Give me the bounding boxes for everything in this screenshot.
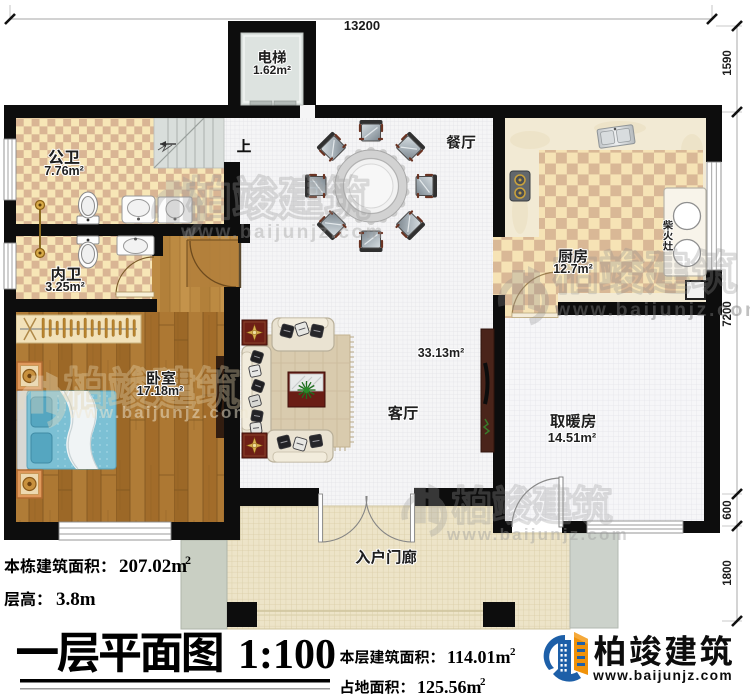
- svg-text:207.02m: 207.02m: [119, 556, 187, 577]
- svg-text:1800: 1800: [722, 560, 734, 586]
- svg-text:125.56m: 125.56m: [417, 677, 482, 697]
- svg-text:3.25m²: 3.25m²: [45, 280, 85, 294]
- svg-text:www.baijunjz.com: www.baijunjz.com: [180, 222, 385, 243]
- svg-text:7.76m²: 7.76m²: [44, 164, 84, 178]
- svg-text:1.62m²: 1.62m²: [253, 63, 291, 77]
- svg-text:1590: 1590: [722, 50, 734, 76]
- svg-text:600: 600: [722, 500, 734, 519]
- svg-text:14.51m²: 14.51m²: [548, 430, 597, 445]
- svg-text:33.13m²: 33.13m²: [418, 346, 465, 360]
- svg-text:www.baijunjz.com: www.baijunjz.com: [446, 525, 629, 544]
- svg-text:www.baijunjz.com: www.baijunjz.com: [68, 403, 251, 422]
- svg-text:2: 2: [510, 646, 516, 658]
- svg-text:114.01m: 114.01m: [447, 647, 511, 667]
- svg-text:2: 2: [480, 676, 486, 688]
- svg-text:2: 2: [185, 553, 191, 567]
- svg-text:12.7m²: 12.7m²: [553, 262, 593, 276]
- svg-text:www.baijunjz.com: www.baijunjz.com: [592, 668, 733, 683]
- svg-text:www.baijunjz.com: www.baijunjz.com: [554, 299, 750, 321]
- svg-text:1:100: 1:100: [238, 632, 336, 678]
- svg-text:13200: 13200: [344, 18, 380, 33]
- svg-text:3.8m: 3.8m: [56, 589, 96, 610]
- svg-text:17.18m²: 17.18m²: [137, 384, 184, 398]
